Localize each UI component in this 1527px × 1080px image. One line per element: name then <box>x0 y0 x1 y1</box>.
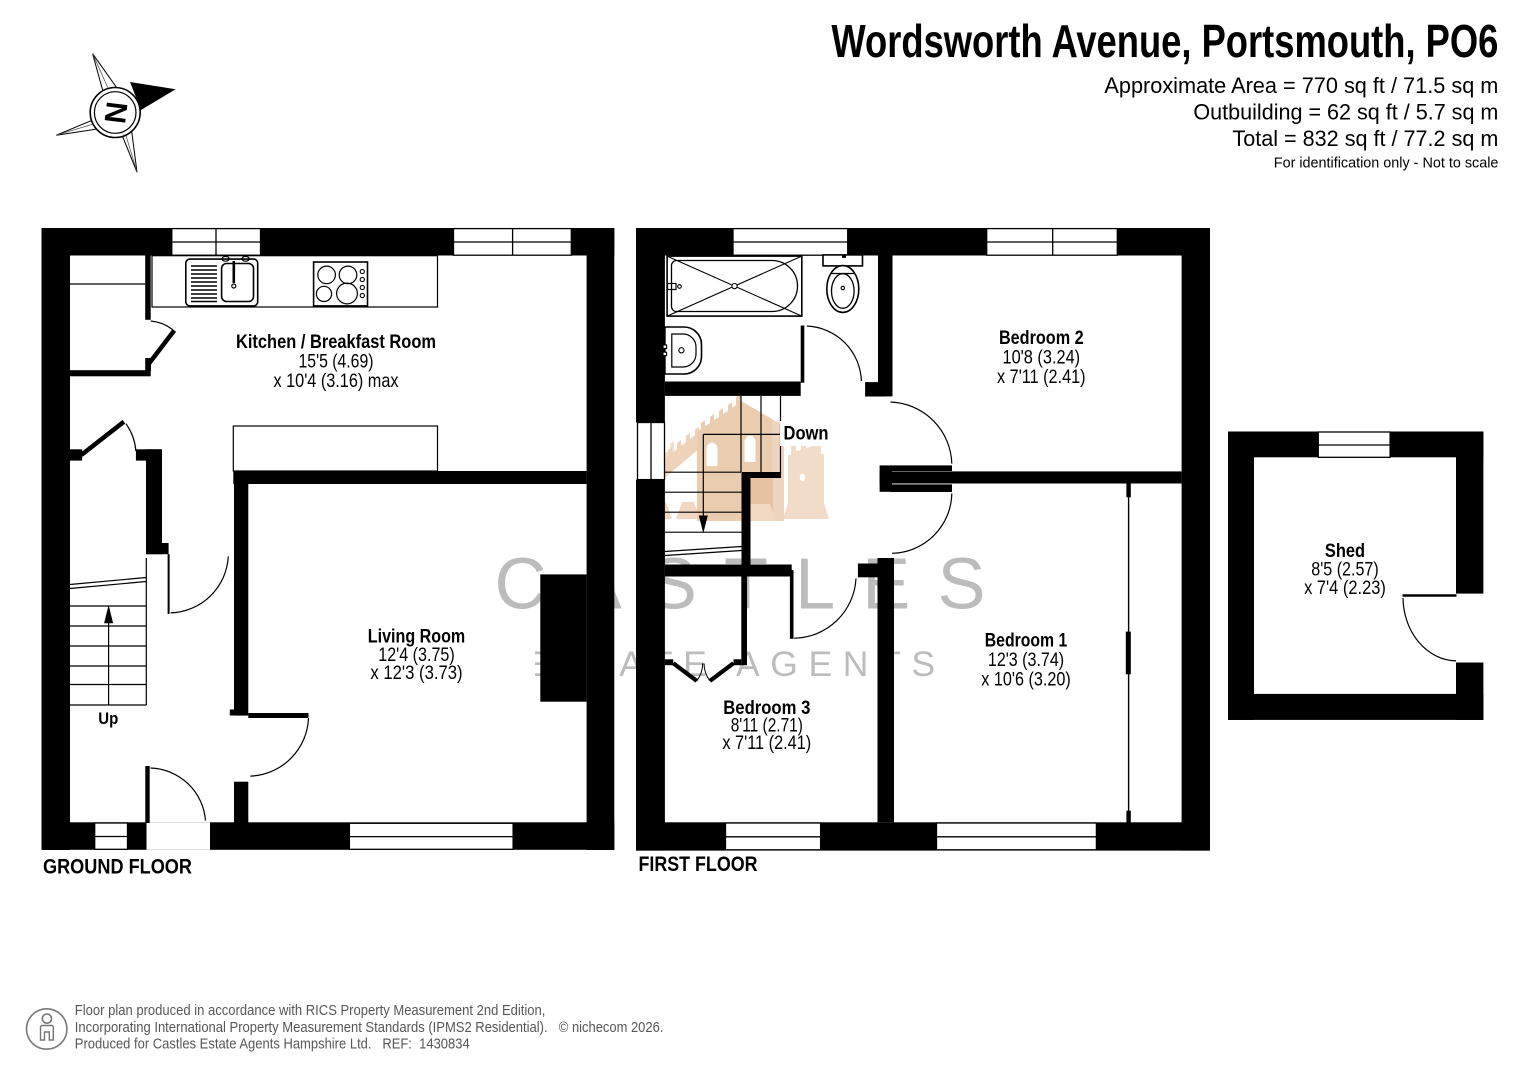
svg-text:Total = 832 sq ft / 77.2 sq m: Total = 832 sq ft / 77.2 sq m <box>1232 126 1498 151</box>
svg-text:FIRST FLOOR: FIRST FLOOR <box>639 852 758 876</box>
svg-text:x 12'3 (3.73): x 12'3 (3.73) <box>370 662 462 684</box>
svg-text:Produced for Castles Estate Ag: Produced for Castles Estate Agents Hamps… <box>75 1036 470 1052</box>
svg-text:N: N <box>98 100 133 126</box>
svg-text:Wordsworth Avenue, Portsmouth,: Wordsworth Avenue, Portsmouth, PO6 <box>831 15 1498 67</box>
svg-text:For identification only - Not: For identification only - Not to scale <box>1274 156 1499 172</box>
svg-text:Down: Down <box>784 423 829 445</box>
svg-text:x 7'11 (2.41): x 7'11 (2.41) <box>722 732 811 754</box>
svg-text:x 7'4 (2.23): x 7'4 (2.23) <box>1304 577 1386 599</box>
svg-text:Outbuilding = 62 sq ft / 5.7 s: Outbuilding = 62 sq ft / 5.7 sq m <box>1193 99 1498 124</box>
svg-text:x 10'4 (3.16) max: x 10'4 (3.16) max <box>274 370 399 392</box>
svg-text:GROUND FLOOR: GROUND FLOOR <box>43 855 192 879</box>
svg-text:© nichecom 2026.: © nichecom 2026. <box>559 1020 664 1036</box>
svg-text:Approximate Area = 770 sq ft /: Approximate Area = 770 sq ft / 71.5 sq m <box>1104 73 1498 98</box>
svg-text:x 7'11 (2.41): x 7'11 (2.41) <box>997 366 1086 388</box>
svg-text:Floor plan produced in accorda: Floor plan produced in accordance with R… <box>75 1003 546 1019</box>
svg-text:x 10'6 (3.20): x 10'6 (3.20) <box>981 669 1071 691</box>
svg-text:Up: Up <box>98 709 118 728</box>
svg-text:Incorporating International Pr: Incorporating International Property Mea… <box>75 1020 548 1036</box>
